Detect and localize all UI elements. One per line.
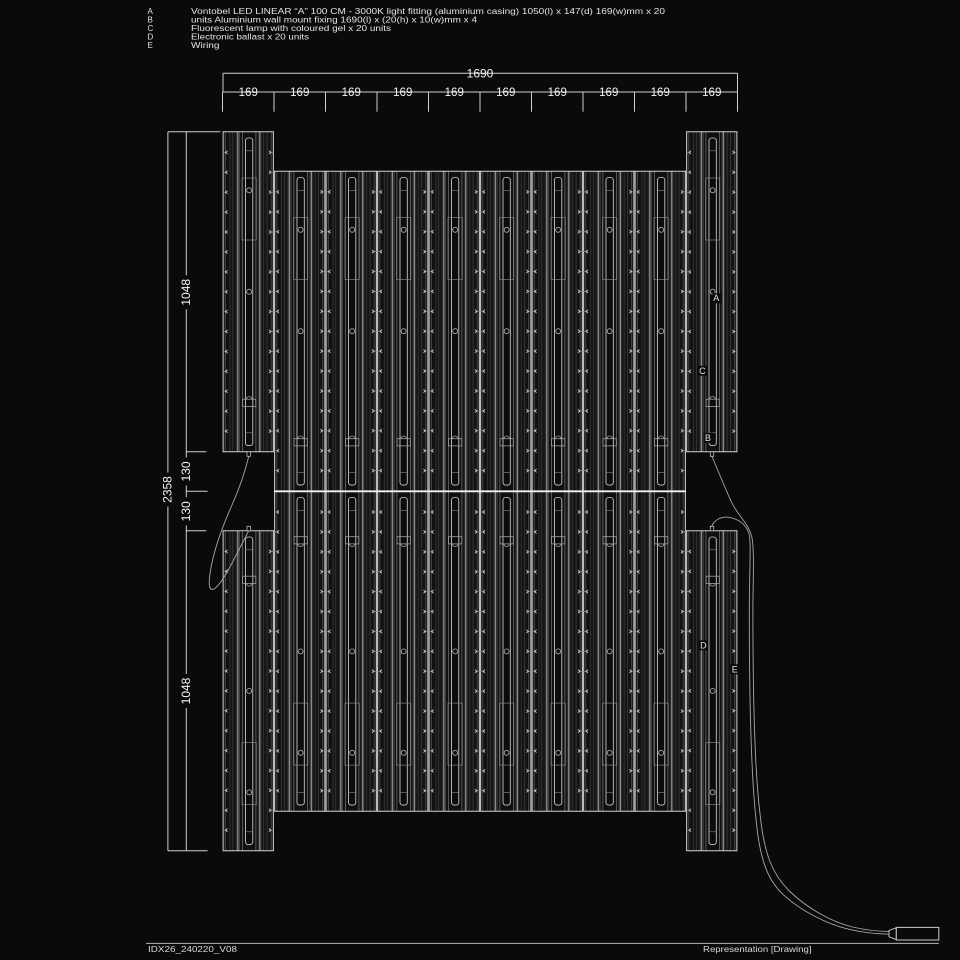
svg-text:169: 169 <box>445 87 464 99</box>
svg-text:E: E <box>148 41 153 50</box>
svg-text:169: 169 <box>393 87 412 99</box>
svg-text:Representation [Drawing]: Representation [Drawing] <box>703 944 812 954</box>
svg-text:D: D <box>700 641 707 651</box>
svg-text:169: 169 <box>702 87 721 99</box>
svg-text:169: 169 <box>496 87 515 99</box>
svg-text:1048: 1048 <box>179 677 193 704</box>
svg-text:169: 169 <box>548 87 567 99</box>
svg-text:2358: 2358 <box>160 476 174 503</box>
svg-text:C: C <box>699 366 706 376</box>
svg-text:A: A <box>713 293 719 303</box>
svg-text:1048: 1048 <box>179 279 193 306</box>
svg-text:169: 169 <box>290 87 309 99</box>
svg-text:1690: 1690 <box>467 67 494 81</box>
svg-text:130: 130 <box>179 501 193 521</box>
svg-text:Wiring: Wiring <box>191 41 220 50</box>
svg-text:169: 169 <box>651 87 670 99</box>
svg-text:169: 169 <box>599 87 618 99</box>
svg-text:E: E <box>732 665 738 675</box>
svg-text:IDX26_240220_V08: IDX26_240220_V08 <box>148 944 237 954</box>
svg-text:169: 169 <box>342 87 361 99</box>
svg-text:130: 130 <box>179 461 193 481</box>
svg-text:169: 169 <box>239 87 258 99</box>
svg-text:B: B <box>705 433 711 443</box>
